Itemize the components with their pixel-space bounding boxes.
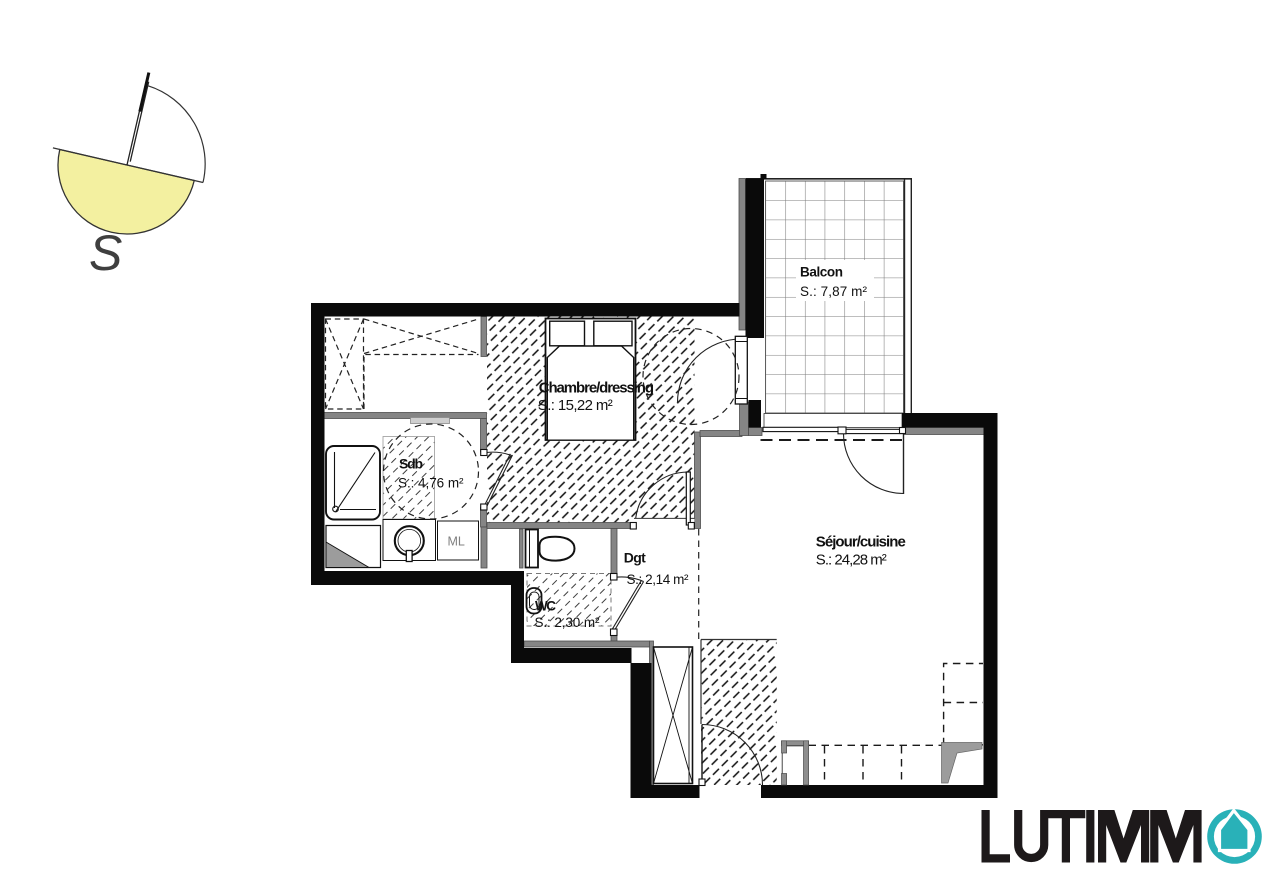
svg-text:S: S xyxy=(89,225,122,281)
svg-text:Chambre/dressing: Chambre/dressing xyxy=(539,379,654,396)
svg-text:Sdb: Sdb xyxy=(399,456,423,472)
svg-text:Dgt: Dgt xyxy=(624,550,646,566)
svg-text:S.: 4,76 m²: S.: 4,76 m² xyxy=(398,476,464,491)
svg-text:S.: 24,28 m²: S.: 24,28 m² xyxy=(816,552,887,569)
svg-text:S.: 7,87 m²: S.: 7,87 m² xyxy=(800,284,868,299)
svg-text:Séjour/cuisine: Séjour/cuisine xyxy=(816,534,906,551)
svg-text:S.: 2,30 m²: S.: 2,30 m² xyxy=(535,615,601,630)
svg-text:WC: WC xyxy=(535,598,556,613)
svg-text:ML: ML xyxy=(448,535,465,549)
svg-text:S.: 15,22 m²: S.: 15,22 m² xyxy=(538,397,613,414)
svg-text:S.: 2,14 m²: S.: 2,14 m² xyxy=(627,572,690,587)
svg-text:Balcon: Balcon xyxy=(800,265,843,280)
